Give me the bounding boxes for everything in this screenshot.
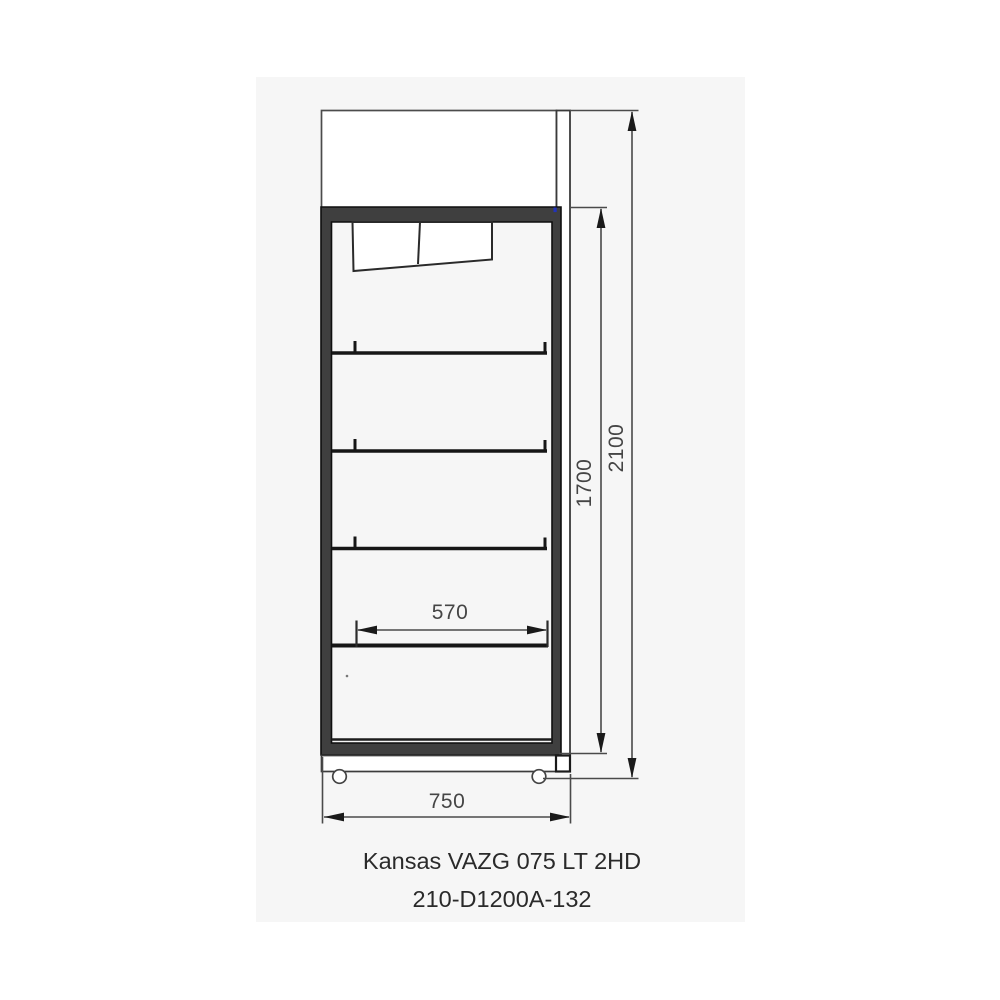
door-bottom-block — [556, 756, 570, 772]
product-code: 210-D1200A-132 — [413, 886, 592, 912]
dim-label-750: 750 — [429, 790, 466, 813]
dim-label-1700: 1700 — [573, 459, 596, 508]
page: 2100 1700 570 750 Kansas — [0, 0, 1000, 1000]
foot-left — [333, 770, 347, 784]
dim-label-570: 570 — [432, 601, 469, 624]
blue-mark — [554, 208, 557, 213]
product-name: Kansas VAZG 075 LT 2HD — [363, 848, 641, 874]
canopy-outline — [322, 111, 557, 208]
technical-drawing: 2100 1700 570 750 Kansas — [0, 0, 1000, 1000]
base-plinth — [322, 756, 557, 772]
foot-right — [532, 770, 546, 784]
dim-label-2100: 2100 — [605, 424, 628, 473]
artifact-dot — [346, 675, 349, 678]
